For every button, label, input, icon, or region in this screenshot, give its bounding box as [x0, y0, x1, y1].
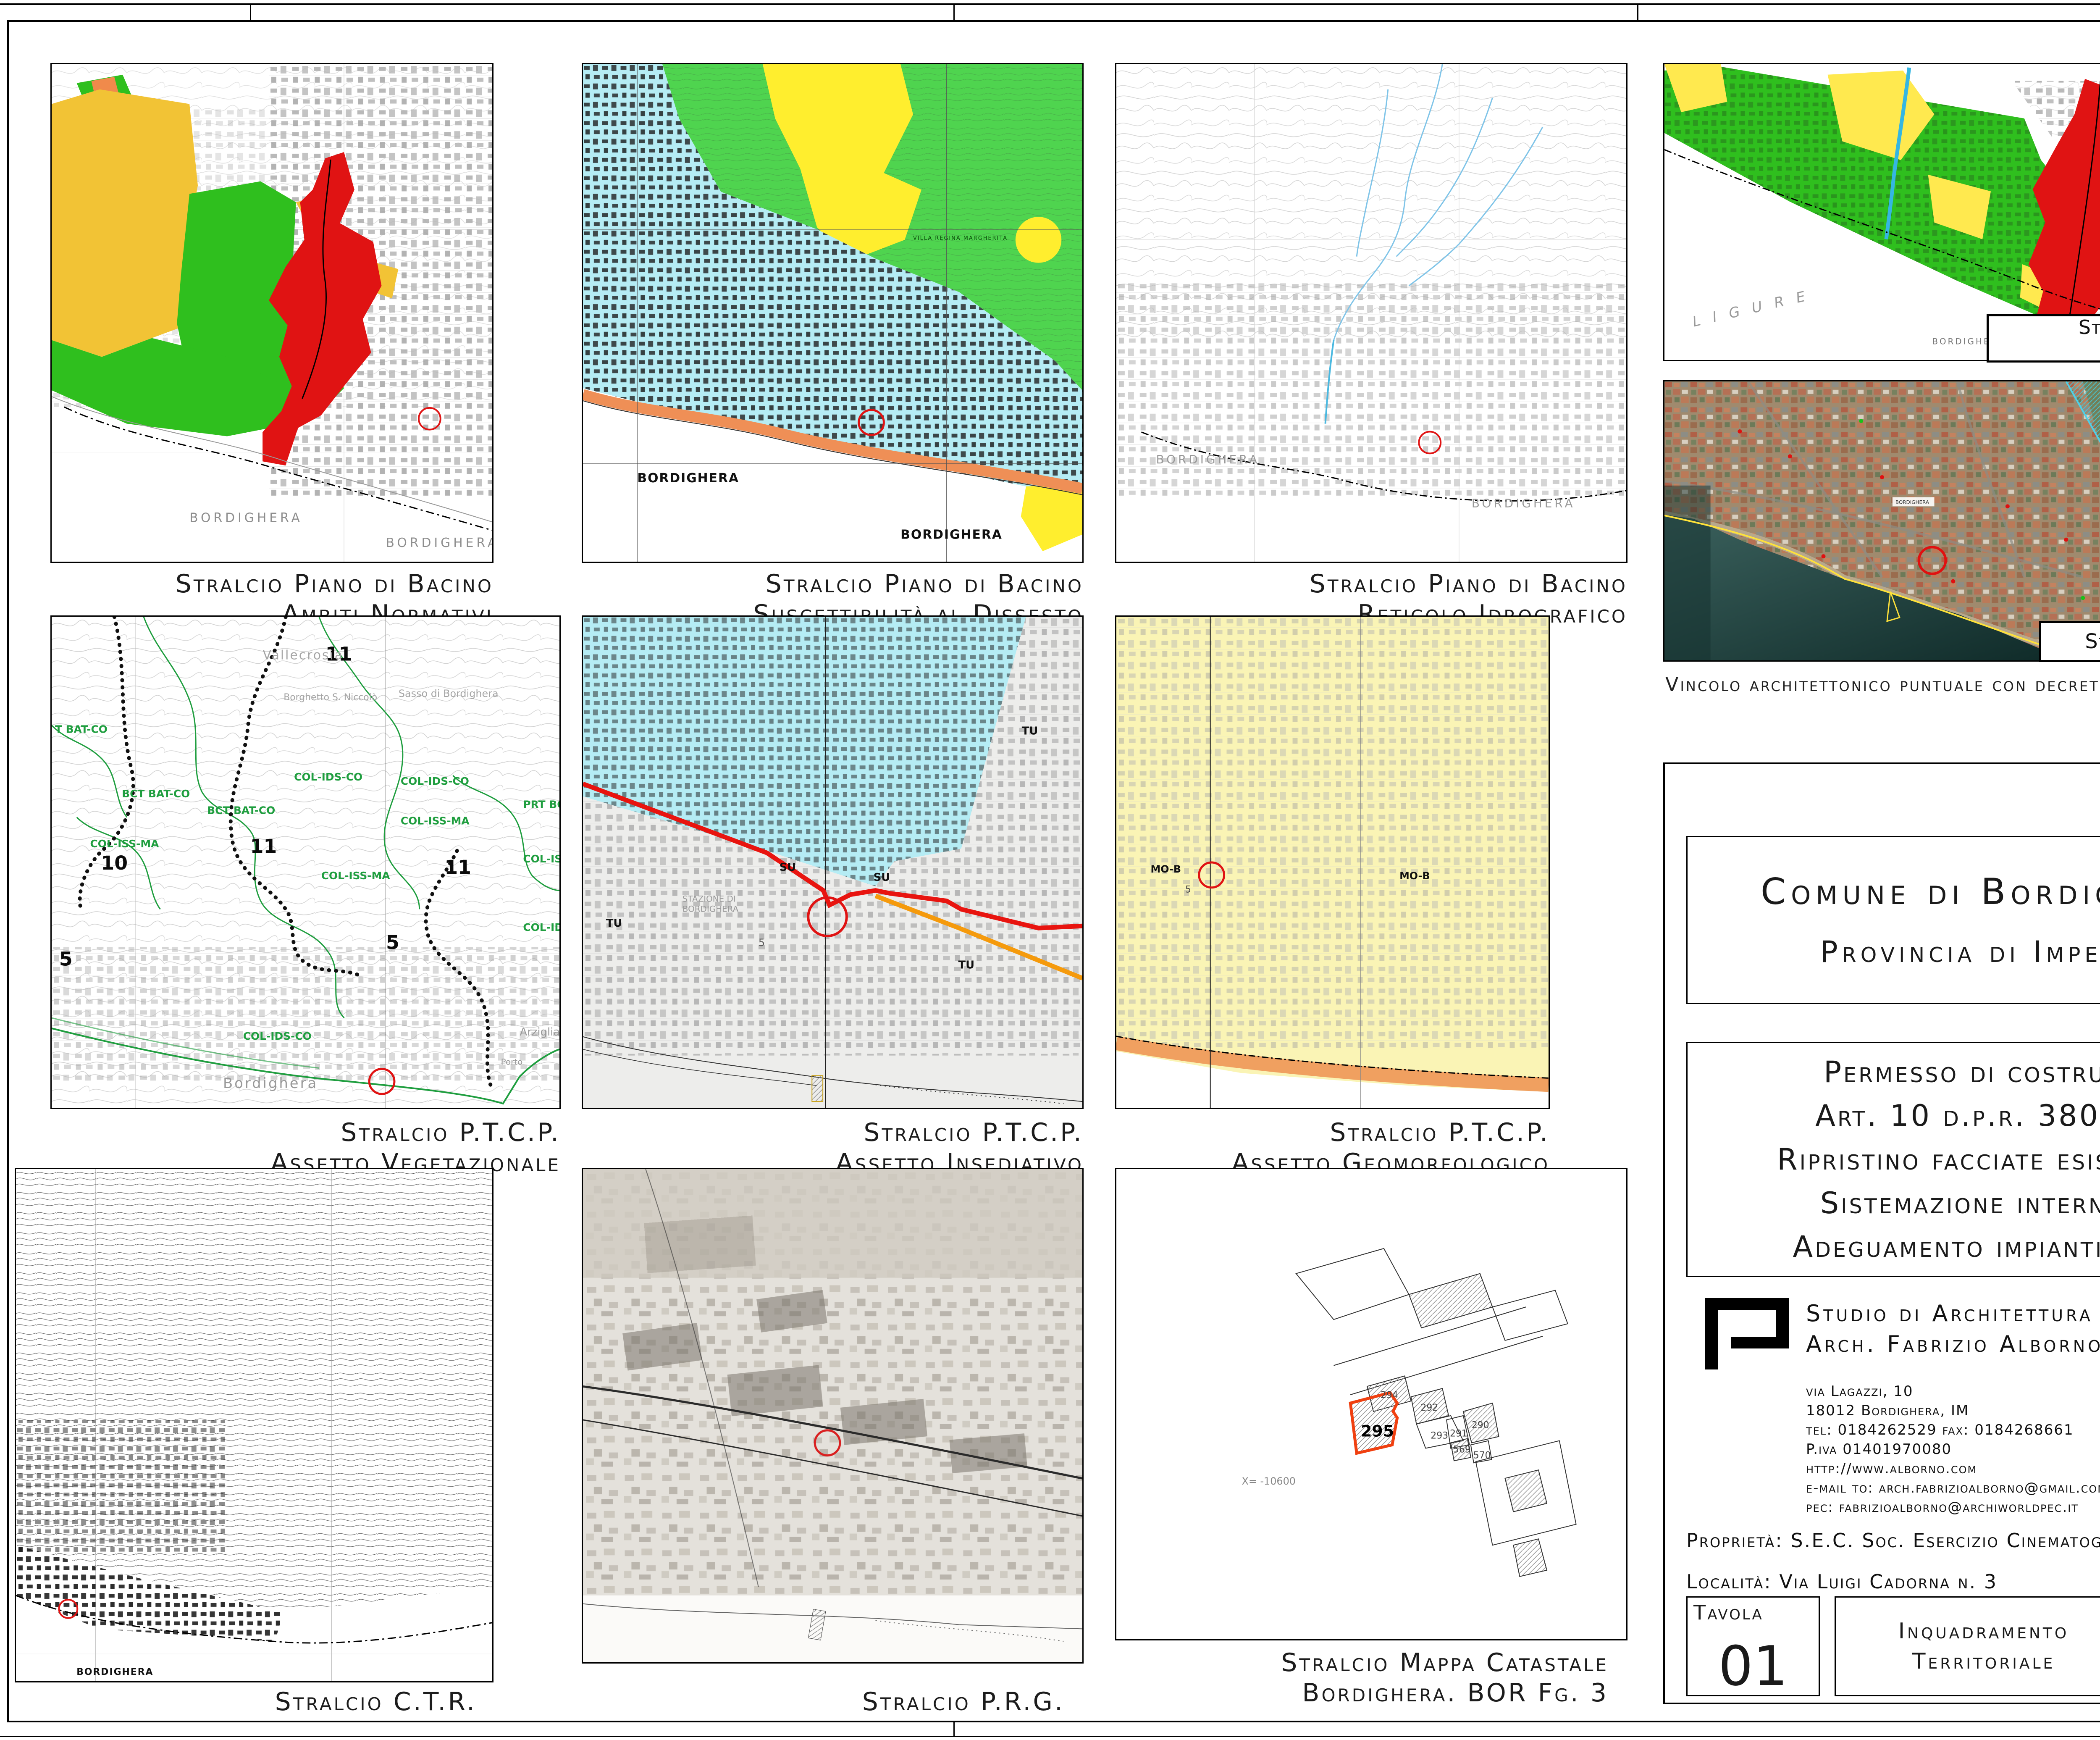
municipality-name: Comune di Bordighera [1761, 871, 2100, 913]
svg-text:TU: TU [606, 917, 622, 930]
reticolo-map: BORDIGHERA BORDIGHERA [1116, 64, 1626, 562]
drawing-title-line: Inquadramento [1898, 1616, 2069, 1646]
caption-catastale: Stralcio Mappa Catastale Bordighera. BOR… [1115, 1648, 1609, 1708]
svg-text:10: 10 [101, 852, 128, 874]
svg-text:BORDIGHERA: BORDIGHERA [682, 904, 739, 914]
map-label-bordighera: BORDIGHERA [1472, 497, 1575, 510]
drawing-title-box: Inquadramento Territoriale [1835, 1596, 2100, 1696]
svg-text:SU: SU [780, 861, 796, 874]
ctr-map: BORDIGHERA [16, 1169, 492, 1681]
caption-line: Stralcio C.T.R. [15, 1687, 477, 1717]
svg-text:COL-IDS-CO: COL-IDS-CO [243, 1030, 312, 1042]
svg-text:Borghetto S. Niccolò: Borghetto S. Niccolò [283, 692, 377, 703]
caption-line: Stralcio Carta Vincoli [2049, 630, 2100, 653]
svg-text:STAZIONE DI: STAZIONE DI [682, 894, 736, 904]
panel-reticolo: BORDIGHERA BORDIGHERA [1115, 63, 1627, 563]
caption-line: Stralcio Piano di Bacino [50, 569, 493, 599]
station-label: STAZIONE DI BORDIGHERA [682, 894, 739, 914]
svg-text:Arziglia: Arziglia [520, 1026, 559, 1038]
panel-insediativo: SU SU TU TU TU 5 STAZIONE DI BORDIGHERA [582, 615, 1084, 1109]
vincoli-satellite: BORDIGHERA BORDIGHERA [1664, 381, 2100, 660]
svg-text:COL-IDS-CO: COL-IDS-CO [294, 771, 362, 783]
caption-line: Stralcio Piano di Bacino [1115, 569, 1627, 599]
caption-line: Stralcio P.T.C.P. [582, 1117, 1084, 1148]
map-label-bordighera: BORDIGHERA [76, 1667, 153, 1677]
svg-text:MO-B: MO-B [1151, 863, 1181, 875]
svg-text:BORDIGHERA: BORDIGHERA [1895, 499, 1929, 505]
svg-text:291: 291 [1450, 1429, 1467, 1439]
suscettibilita-map: VILLA REGINA MARGHERITA BORDIGHERA BORDI… [583, 64, 1082, 562]
caption-line: Stralcio Piano di Bacino [582, 569, 1084, 599]
svg-text:TU: TU [958, 959, 974, 972]
caption-box-vincoli: Stralcio Carta Vincoli [2039, 621, 2100, 662]
caption-line: Stralcio P.T.C.P. [1115, 1117, 1550, 1148]
tavola-box: Tavola 01 [1686, 1596, 1820, 1696]
province-name: Provincia di Imperia [1820, 935, 2100, 969]
fold-tick-1 [250, 3, 251, 22]
drawing-title-line: Territoriale [1912, 1646, 2055, 1677]
panel-carta-vincoli: BORDIGHERA BORDIGHERA [1663, 380, 2100, 662]
panel-suscettibilita: VILLA REGINA MARGHERITA BORDIGHERA BORDI… [582, 63, 1084, 563]
svg-text:5: 5 [1185, 885, 1191, 895]
svg-text:COL-ISS-MA: COL-ISS-MA [401, 815, 470, 827]
svg-text:COL-IDS-CO: COL-IDS-CO [401, 775, 469, 787]
svg-text:294: 294 [1381, 1390, 1398, 1401]
map-label-bordighera: BORDIGHERA [386, 536, 492, 550]
sheet-top-edge [0, 3, 2100, 5]
caption-line: Stralcio P.R.G. [582, 1687, 1065, 1717]
svg-text:5: 5 [386, 931, 399, 954]
map-label-villa: VILLA REGINA MARGHERITA [913, 235, 1008, 242]
permit-box: Permesso di costruire Art. 10 d.p.r. 380… [1686, 1042, 2100, 1277]
vincolo-note: Vincolo architettonico puntuale con decr… [1665, 673, 2100, 696]
svg-text:COL-ISS-MA: COL-ISS-MA [321, 870, 391, 882]
fold-tick-bottom [953, 1722, 955, 1736]
map-label-bordighera: BORDIGHERA [189, 510, 303, 525]
permit-line: Permesso di costruire [1824, 1050, 2100, 1094]
svg-text:BCT BAT-CO: BCT BAT-CO [122, 788, 190, 800]
svg-text:SU: SU [874, 871, 890, 884]
permit-line: Art. 10 d.p.r. 380/01 [1815, 1094, 2100, 1138]
fold-tick-3 [1637, 3, 1638, 22]
caption-line: Fasce Innondabili [1996, 339, 2100, 361]
studio-email-line: e-mail to: arch.fabrizioalborno@gmail.co… [1806, 1480, 2100, 1496]
panel-vegetazionale: 11 10 11 11 5 5 T BAT-CO BCT BAT-CO BCT … [50, 615, 561, 1109]
panel-catastale: 294 292 293 291 290 569 570 295 X= -1060… [1115, 1168, 1627, 1640]
svg-text:COL-IDS-C: COL-IDS-C [523, 921, 559, 933]
parcel-295-number: 295 [1361, 1422, 1394, 1440]
svg-text:Vallecrosia: Vallecrosia [263, 648, 344, 662]
caption-line: Stralcio Piano di Bacino [1996, 316, 2100, 339]
permit-line: Ripristino facciate esistenti, [1777, 1138, 2100, 1181]
catastale-map: 294 292 293 291 290 569 570 295 X= -1060… [1116, 1169, 1626, 1639]
tavola-label: Tavola [1693, 1601, 1764, 1624]
svg-text:T BAT-CO: T BAT-CO [55, 723, 108, 736]
map-label-bordighera: BORDIGHERA [1156, 452, 1260, 466]
insediativo-map: SU SU TU TU TU 5 STAZIONE DI BORDIGHERA [583, 617, 1082, 1108]
svg-text:Sasso di Bordighera: Sasso di Bordighera [399, 688, 499, 699]
studio-address-line: via Lagazzi, 10 [1806, 1383, 1914, 1400]
svg-text:Porto: Porto [501, 1057, 523, 1067]
permit-line: Adeguamento impiantistico [1793, 1225, 2100, 1269]
svg-text:292: 292 [1420, 1403, 1438, 1413]
svg-text:569: 569 [1453, 1444, 1471, 1455]
svg-text:11: 11 [444, 856, 471, 878]
svg-text:COL-ISS-MA: COL-ISS-MA [90, 838, 160, 850]
prg-map [583, 1169, 1082, 1662]
vegetazionale-map: 11 10 11 11 5 5 T BAT-CO BCT BAT-CO BCT … [52, 617, 559, 1108]
caption-line: Stralcio P.T.C.P. [50, 1117, 561, 1148]
svg-text:TU: TU [1022, 725, 1038, 738]
caption-prg: Stralcio P.R.G. [582, 1687, 1065, 1717]
studio-pec-line: pec: fabrizioalborno@archiworldpec.it [1806, 1499, 2079, 1516]
panel-ambiti-normativi: BORDIGHERA BORDIGHERA [50, 63, 493, 563]
panel-geomorfologico: MO-B MO-B 5 [1115, 615, 1550, 1109]
svg-text:Bordighera: Bordighera [223, 1075, 318, 1091]
studio-name: Studio di Architettura [1806, 1300, 2093, 1327]
svg-text:570: 570 [1473, 1450, 1491, 1461]
svg-text:COL-ISS-M: COL-ISS-M [523, 853, 559, 865]
tavola-number: 01 [1688, 1639, 1819, 1693]
svg-text:BCT BAT-CO: BCT BAT-CO [207, 804, 275, 817]
location-line: Località: Via Luigi Cadorna n. 3 [1686, 1570, 1998, 1593]
svg-text:11: 11 [250, 835, 277, 857]
studio-website-line: http://www.alborno.com [1806, 1460, 1977, 1477]
svg-text:290: 290 [1472, 1420, 1489, 1431]
svg-text:PRT BO: PRT BO [523, 799, 559, 811]
panel-prg [582, 1168, 1084, 1664]
caption-line: Bordighera. BOR Fg. 3 [1115, 1678, 1609, 1708]
caption-box-fasce: Stralcio Piano di Bacino Fasce Innondabi… [1987, 314, 2100, 363]
municipality-box: Comune di Bordighera Provincia di Imperi… [1686, 836, 2100, 1004]
studio-piva-line: P.iva 01401970080 [1806, 1441, 1952, 1458]
studio-address-line: 18012 Bordighera, IM [1806, 1402, 1969, 1419]
geomorfologico-map: MO-B MO-B 5 [1116, 617, 1549, 1108]
caption-ctr: Stralcio C.T.R. [15, 1687, 477, 1717]
map-label-bordighera: BORDIGHERA [900, 527, 1003, 542]
studio-logo [1705, 1298, 1789, 1369]
fold-tick-2 [953, 3, 955, 22]
coord-label: X= -10600 [1242, 1475, 1296, 1487]
panel-ctr: BORDIGHERA [15, 1168, 493, 1682]
svg-text:5: 5 [59, 948, 73, 970]
permit-line: Sistemazione interna e [1820, 1181, 2100, 1225]
svg-text:MO-B: MO-B [1399, 870, 1430, 882]
property-line: Proprietà: S.E.C. Soc. Esercizio Cinemat… [1686, 1529, 2100, 1552]
sheet-bottom-edge [0, 1736, 2100, 1737]
map-label-bordighera: BORDIGHERA [637, 471, 739, 486]
svg-text:293: 293 [1431, 1431, 1448, 1441]
caption-line: Stralcio Mappa Catastale [1115, 1648, 1609, 1678]
architect-name: Arch. Fabrizio Alborno [1806, 1331, 2100, 1357]
studio-phone-line: tel: 0184262529 fax: 0184268661 [1806, 1422, 2074, 1438]
ambiti-map: BORDIGHERA BORDIGHERA [52, 64, 492, 562]
svg-text:5: 5 [759, 937, 765, 949]
